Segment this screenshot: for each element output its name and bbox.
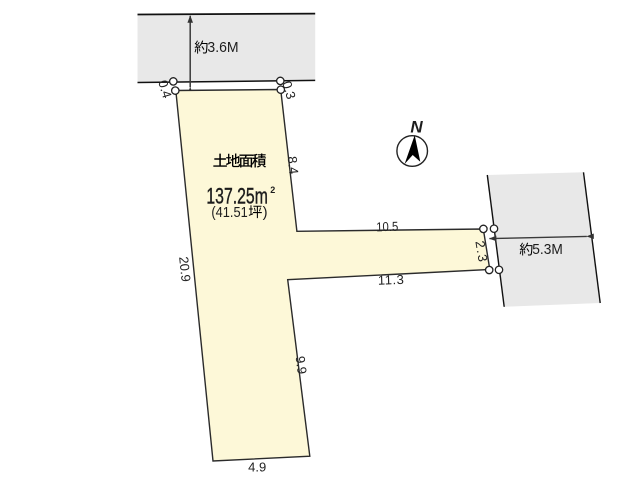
svg-text:10.5: 10.5 — [376, 219, 398, 235]
svg-text:3.6M: 3.6M — [207, 39, 238, 56]
svg-text:): ) — [263, 205, 268, 221]
svg-text:5.3M: 5.3M — [532, 241, 563, 258]
svg-text:(41.51: (41.51 — [211, 205, 247, 221]
svg-text:2: 2 — [270, 185, 275, 195]
svg-text:9.9: 9.9 — [293, 355, 310, 375]
svg-text:8.4: 8.4 — [285, 156, 302, 176]
svg-text:N: N — [410, 118, 423, 137]
svg-text:4.9: 4.9 — [248, 459, 266, 474]
svg-text:20.9: 20.9 — [176, 256, 193, 283]
svg-text:11.3: 11.3 — [378, 272, 405, 288]
